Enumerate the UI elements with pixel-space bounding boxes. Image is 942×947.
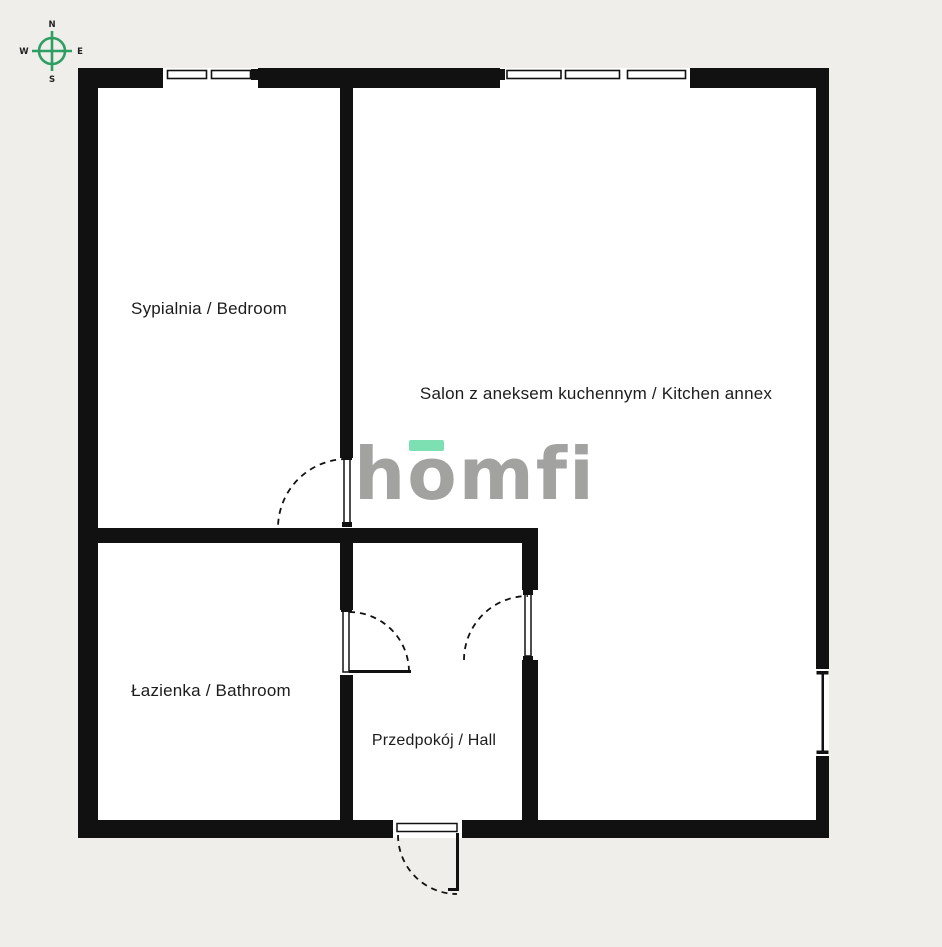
bedroom-window-sash	[212, 71, 251, 79]
living-hall-door-frame	[525, 594, 531, 656]
living-window-sash	[566, 71, 620, 79]
wall-top-right-segment	[690, 68, 829, 88]
bedroom-window-cap	[251, 69, 258, 80]
wall-bathroom-hall-upper	[340, 528, 353, 610]
entrance-door-leaf	[456, 833, 459, 891]
bedroom-door-cap	[342, 522, 352, 527]
room-label-bathroom: Łazienka / Bathroom	[131, 681, 291, 701]
bathroom-door-leaf	[349, 670, 411, 673]
homfi-logo: homfi	[354, 438, 614, 528]
bedroom-window	[168, 69, 259, 80]
wall-hall-living-lower	[522, 660, 538, 820]
living-window-sash	[507, 71, 561, 79]
room-label-bedroom: Sypialnia / Bedroom	[131, 299, 287, 319]
living-hall-door-cap	[523, 656, 533, 661]
compass-letter-west: W	[19, 47, 29, 57]
bedroom-window-sash	[168, 71, 207, 79]
living-hall-door-cap	[523, 590, 533, 595]
compass-letter-east: E	[77, 47, 83, 57]
logo-accent-bar	[409, 440, 444, 451]
entrance-door-leaf-cap	[448, 888, 459, 891]
right-window-cap-bottom	[817, 751, 829, 755]
wall-bedroom-living-divider	[340, 88, 353, 458]
wall-left	[78, 68, 98, 838]
floor-plan-image: N E S W Sypialnia / Bedroom Salon z anek…	[0, 0, 942, 947]
compass-letter-north: N	[48, 20, 55, 30]
wall-right-upper-segment	[816, 68, 829, 669]
wall-bathroom-hall-lower	[340, 675, 353, 820]
compass-letter-south: S	[49, 75, 55, 85]
wall-hall-living-upper	[522, 528, 538, 590]
living-room-window	[499, 69, 686, 80]
living-window-sash	[628, 71, 686, 79]
room-label-living-kitchen: Salon z aneksem kuchennym / Kitchen anne…	[420, 384, 772, 404]
wall-top-middle-segment	[258, 68, 500, 88]
entrance-door-frame	[397, 824, 457, 832]
room-label-hall: Przedpokój / Hall	[372, 732, 496, 750]
bedroom-door-leaf	[344, 459, 350, 525]
compass-rose: N E S W	[19, 20, 83, 85]
wall-middle-horizontal	[78, 528, 538, 543]
logo-text: homfi	[354, 438, 614, 510]
right-window-line	[822, 673, 825, 752]
living-window-cap	[499, 69, 505, 80]
entrance-door-swing-arc	[398, 835, 457, 894]
bathroom-door-frame	[343, 611, 349, 672]
wall-bottom-left-segment	[78, 820, 393, 838]
wall-bottom-right-segment	[462, 820, 829, 838]
